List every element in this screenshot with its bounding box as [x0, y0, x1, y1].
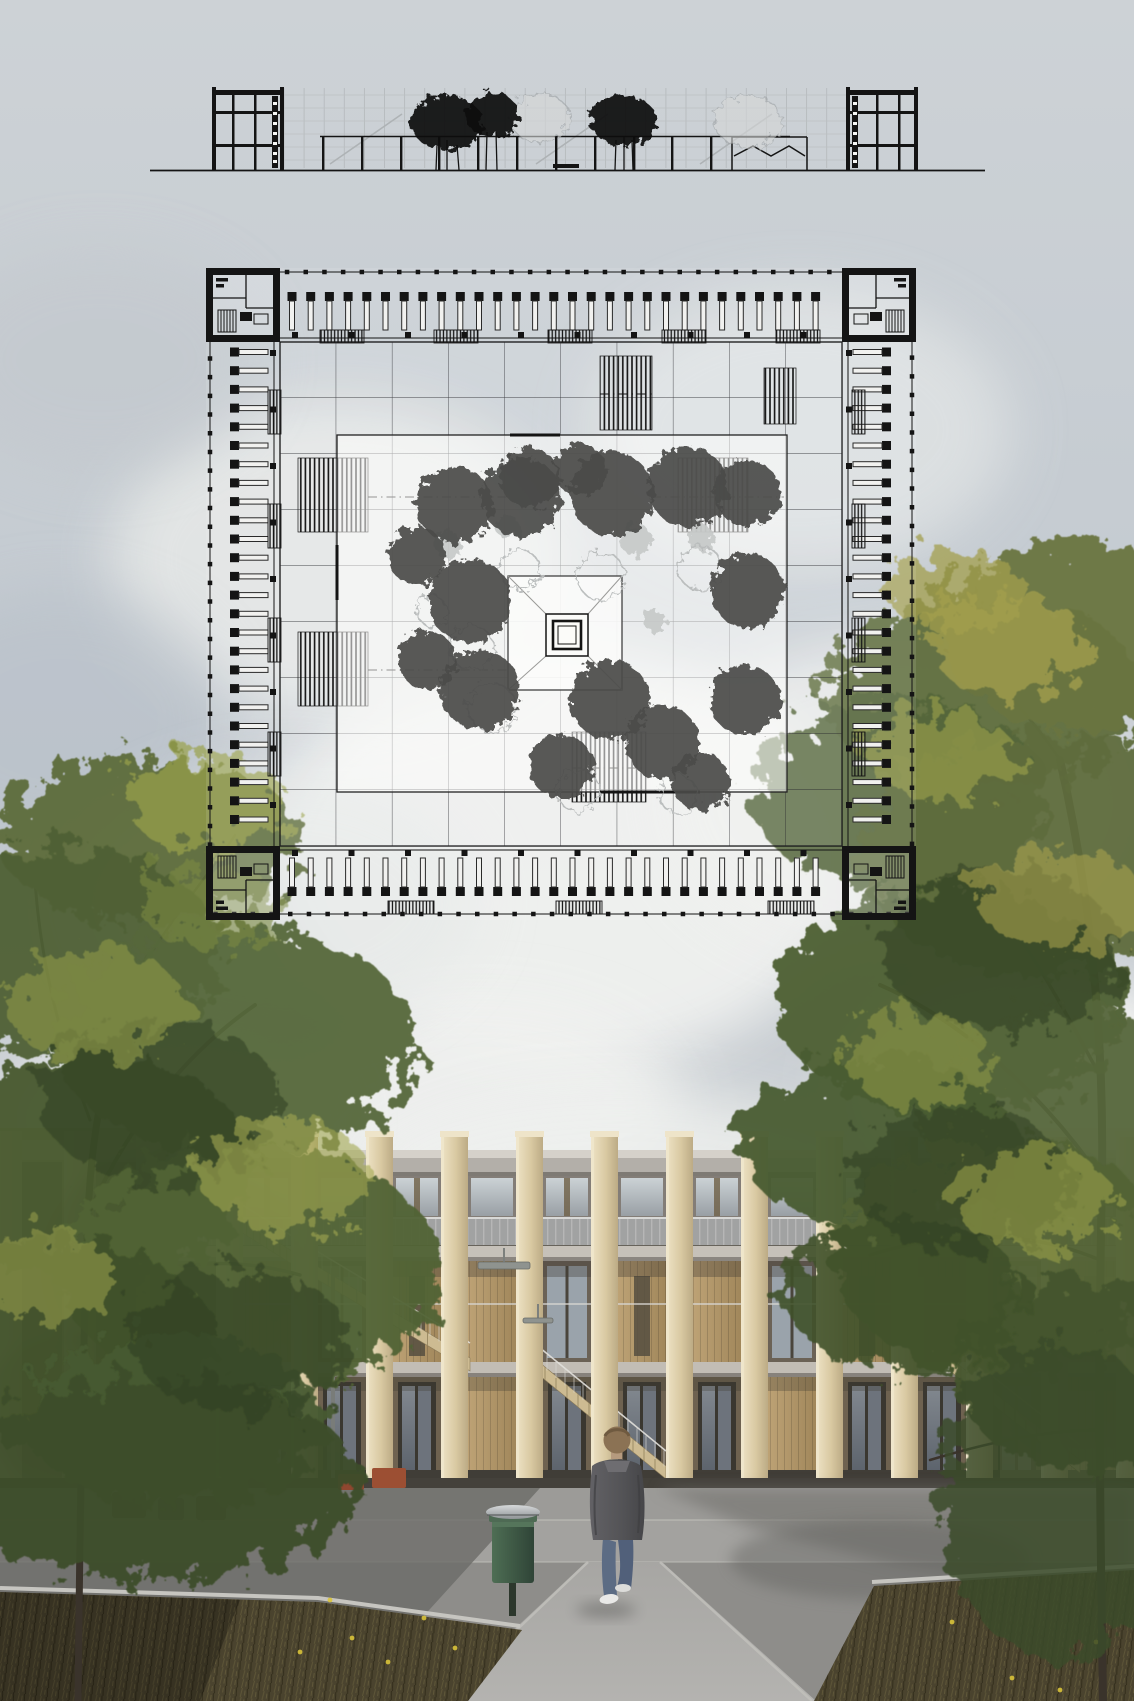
section-column [477, 137, 479, 170]
pillar-highlight [741, 1131, 744, 1490]
pillar-cap [515, 1131, 544, 1137]
core-top-left [210, 272, 277, 339]
flower [350, 1636, 355, 1641]
plan-comb [268, 732, 281, 776]
grass-left-shade [0, 1592, 240, 1701]
section-column [400, 137, 402, 170]
lamp-bar [523, 1318, 553, 1323]
flower [298, 1650, 303, 1655]
plan-comb [268, 504, 281, 548]
plan-comb [268, 618, 281, 662]
person-shoe [615, 1584, 631, 1592]
plan-comb [768, 901, 814, 914]
pillar-cap [365, 1131, 394, 1137]
door-glass [852, 1386, 865, 1470]
pillar-cap [440, 1131, 469, 1137]
pillar [666, 1131, 693, 1490]
flower [1010, 1676, 1015, 1681]
canopy-shade [130, 1270, 350, 1410]
courtyard-tree [554, 444, 606, 496]
upper-mullion [564, 1178, 570, 1216]
courtyard-tree [711, 554, 785, 628]
section-tree-gray [714, 95, 782, 147]
section-column [516, 137, 518, 170]
courtyard-shrub [644, 610, 666, 632]
section-column [710, 137, 712, 170]
plan-comb [852, 732, 865, 776]
courtyard-tree [428, 559, 512, 643]
pillar-highlight [441, 1131, 444, 1490]
pillar-highlight [666, 1131, 669, 1490]
door-glass [418, 1386, 431, 1470]
pillar [441, 1131, 468, 1490]
plan-hatch-patch [600, 356, 652, 430]
core-bottom-left [210, 850, 277, 917]
plan-comb [852, 390, 865, 434]
plan-hatch-patch [764, 368, 796, 424]
canopy-accent [843, 1013, 993, 1103]
canopy-accent [952, 1148, 1112, 1248]
plan-comb [662, 330, 706, 343]
core-top-right [846, 272, 913, 339]
section-column [322, 137, 324, 170]
floor-plan-drawing [206, 268, 916, 920]
flower [386, 1660, 391, 1665]
canopy-accent [5, 950, 185, 1060]
courtyard-tree [398, 631, 456, 689]
courtyard-tree [500, 448, 560, 508]
person-leg-left [602, 1538, 617, 1596]
plan-comb [852, 618, 865, 662]
person-shadow [576, 1603, 636, 1617]
mid-recess [634, 1276, 650, 1356]
section-tree-gray [510, 94, 570, 142]
section-tree [465, 93, 519, 137]
upper-glass [621, 1178, 663, 1216]
door-glass [552, 1386, 565, 1470]
planter [372, 1468, 406, 1488]
flower [328, 1598, 333, 1603]
flower [422, 1616, 427, 1621]
flower [1058, 1688, 1063, 1693]
section-column [671, 137, 673, 170]
courtyard-tree [671, 752, 729, 810]
scene-canvas [0, 0, 1134, 1701]
pillar-highlight [591, 1131, 594, 1490]
upper-glass [471, 1178, 513, 1216]
plan-comb [320, 330, 364, 343]
door-glass [402, 1386, 415, 1470]
courtyard-tree [714, 460, 780, 526]
plan-comb [852, 504, 865, 548]
pillar-highlight [516, 1131, 519, 1490]
door-glass [868, 1386, 881, 1470]
plan-comb [434, 330, 478, 343]
upper-mullion [714, 1178, 720, 1216]
plan-comb [556, 901, 602, 914]
section-column [361, 137, 363, 170]
person-collar [604, 1461, 630, 1472]
flower [453, 1646, 458, 1651]
section-tree [590, 95, 656, 145]
plan-courtyard [337, 435, 787, 813]
plan-comb [548, 330, 592, 343]
pillar-cap [590, 1131, 619, 1137]
plan-comb [776, 330, 820, 343]
flower [950, 1620, 955, 1625]
canopy-accent [200, 1120, 370, 1230]
plan-comb [388, 901, 434, 914]
door-glass [718, 1386, 731, 1470]
presentation-board [0, 0, 1134, 1701]
courtyard-tree [529, 734, 593, 798]
section-bench [553, 164, 579, 168]
plan-comb [268, 390, 281, 434]
pillar-cap [665, 1131, 694, 1137]
courtyard-tree [710, 665, 780, 735]
section-column [594, 137, 596, 170]
door-glass [702, 1386, 715, 1470]
lamp-bar [478, 1262, 530, 1269]
core-bottom-right [846, 850, 913, 917]
